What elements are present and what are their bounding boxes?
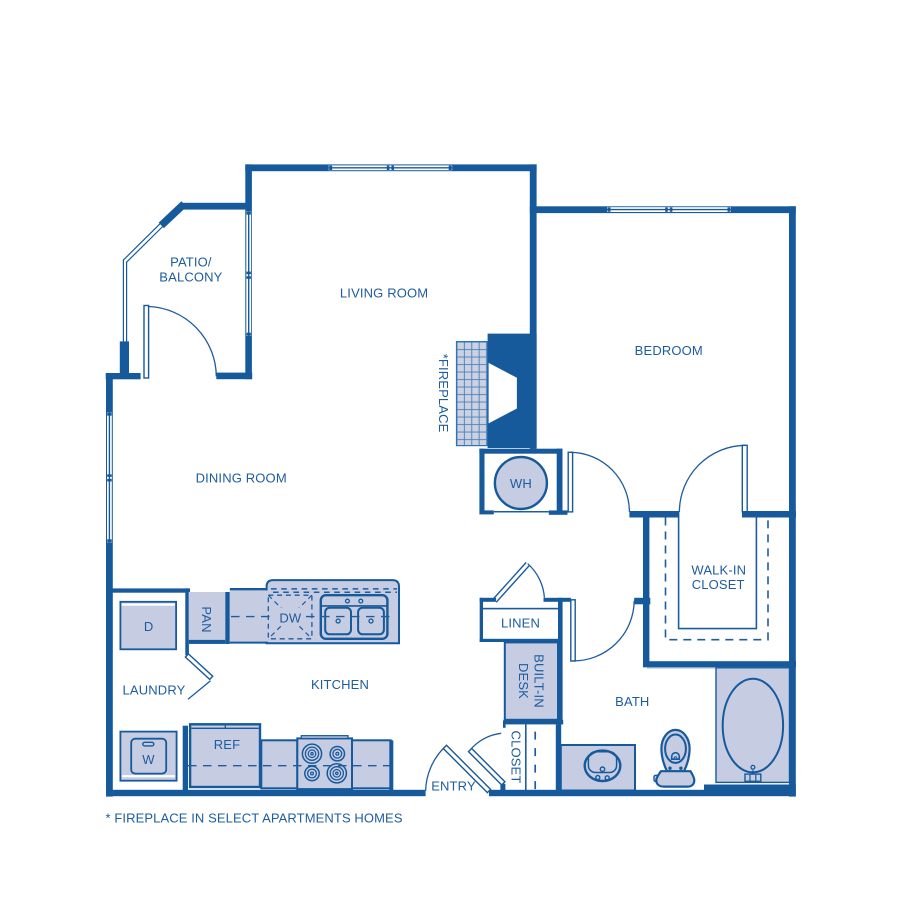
- svg-text:*FIREPLACE: *FIREPLACE: [436, 354, 451, 433]
- svg-text:PATIO/: PATIO/: [170, 254, 212, 269]
- svg-text:* FIREPLACE IN SELECT APARTMEN: * FIREPLACE IN SELECT APARTMENTS HOMES: [106, 811, 403, 826]
- svg-text:BALCONY: BALCONY: [159, 269, 222, 284]
- svg-text:BEDROOM: BEDROOM: [635, 343, 703, 358]
- svg-text:REF: REF: [214, 737, 240, 752]
- svg-text:LAUNDRY: LAUNDRY: [123, 682, 186, 697]
- svg-text:LINEN: LINEN: [501, 616, 540, 631]
- svg-text:PAN: PAN: [199, 606, 214, 632]
- svg-text:BUILT-IN: BUILT-IN: [532, 654, 547, 708]
- svg-text:ENTRY: ENTRY: [431, 779, 476, 794]
- svg-text:BATH: BATH: [615, 694, 649, 709]
- svg-text:CLOSET: CLOSET: [692, 577, 745, 592]
- svg-text:LIVING ROOM: LIVING ROOM: [340, 285, 428, 300]
- svg-text:WH: WH: [510, 476, 532, 491]
- svg-text:D: D: [144, 619, 154, 634]
- svg-text:DESK: DESK: [516, 663, 531, 699]
- svg-text:WALK-IN: WALK-IN: [691, 563, 746, 578]
- svg-text:KITCHEN: KITCHEN: [311, 677, 369, 692]
- svg-text:DW: DW: [279, 610, 302, 625]
- svg-text:W: W: [142, 752, 155, 767]
- svg-text:CLOSET: CLOSET: [509, 731, 524, 784]
- svg-text:DINING ROOM: DINING ROOM: [196, 471, 287, 486]
